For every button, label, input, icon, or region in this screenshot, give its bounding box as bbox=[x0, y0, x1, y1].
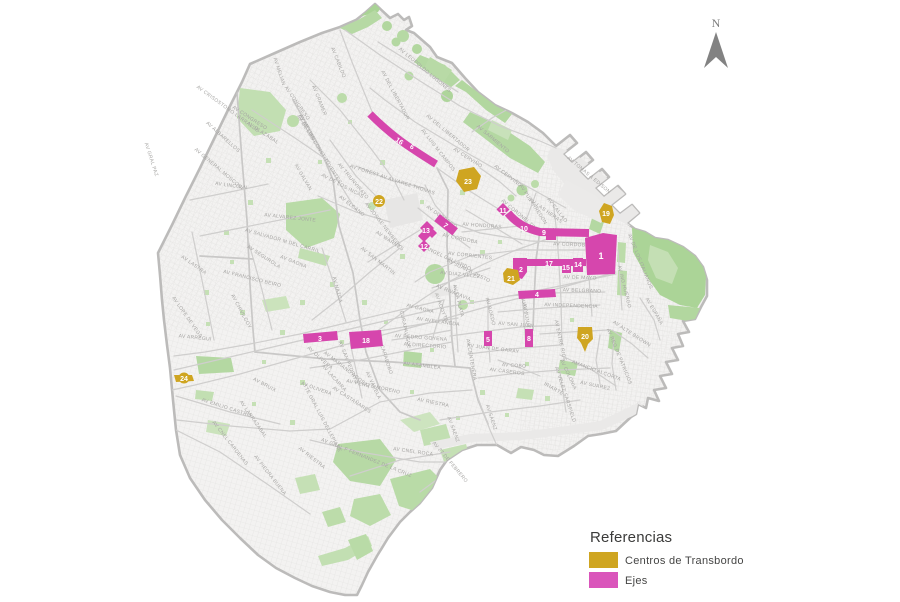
svg-text:AV DE MAYO: AV DE MAYO bbox=[563, 274, 597, 281]
svg-text:Referencias: Referencias bbox=[590, 529, 672, 546]
svg-text:N: N bbox=[712, 16, 721, 30]
svg-text:15: 15 bbox=[562, 265, 570, 272]
svg-text:8: 8 bbox=[527, 336, 531, 343]
svg-text:9: 9 bbox=[542, 230, 546, 237]
svg-text:20: 20 bbox=[581, 334, 589, 341]
svg-text:13: 13 bbox=[422, 228, 430, 235]
svg-text:AV CORDOBA: AV CORDOBA bbox=[553, 241, 590, 248]
svg-text:1: 1 bbox=[598, 251, 603, 261]
svg-text:10: 10 bbox=[520, 226, 528, 233]
svg-text:3: 3 bbox=[318, 336, 322, 343]
svg-text:Centros de Transbordo: Centros de Transbordo bbox=[625, 555, 744, 567]
svg-text:12: 12 bbox=[420, 244, 428, 251]
svg-text:18: 18 bbox=[362, 338, 370, 345]
svg-text:14: 14 bbox=[574, 262, 582, 269]
svg-text:5: 5 bbox=[486, 337, 490, 344]
svg-text:Ejes: Ejes bbox=[625, 575, 648, 587]
svg-text:4: 4 bbox=[535, 292, 539, 299]
svg-text:21: 21 bbox=[507, 276, 515, 283]
svg-text:11: 11 bbox=[499, 208, 507, 215]
svg-text:2: 2 bbox=[519, 267, 523, 274]
svg-text:24: 24 bbox=[180, 376, 188, 383]
svg-text:22: 22 bbox=[375, 199, 383, 206]
svg-text:17: 17 bbox=[545, 261, 553, 268]
svg-text:19: 19 bbox=[602, 211, 610, 218]
svg-text:23: 23 bbox=[464, 179, 472, 186]
